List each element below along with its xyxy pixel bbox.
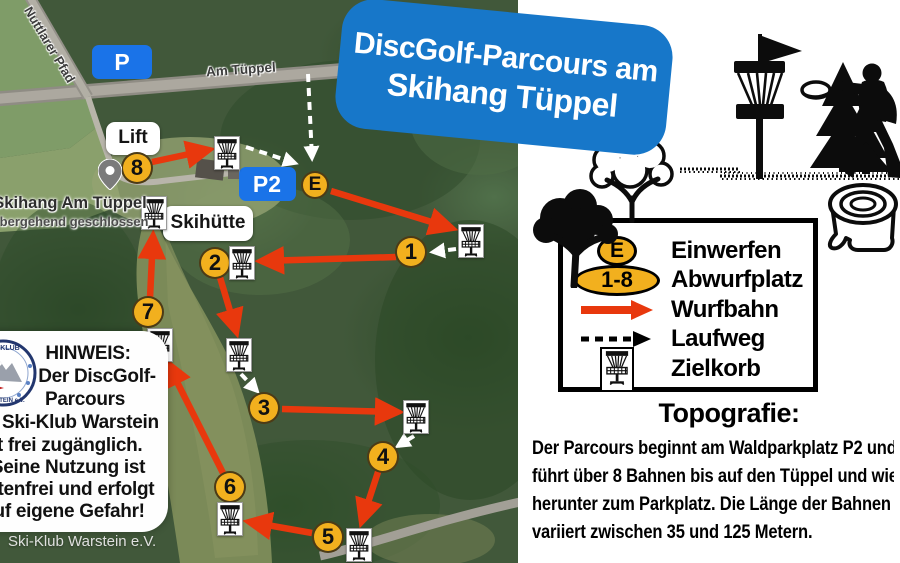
map-pin-icon <box>98 159 122 190</box>
basket-icon <box>346 528 372 562</box>
zielkorb-glyph <box>347 529 371 561</box>
legend-row-zielkorb: Zielkorb <box>563 350 813 388</box>
topografie-line: Der Parcours beginnt am Waldparkplatz P2… <box>532 435 847 463</box>
zielkorb-glyph <box>230 247 254 279</box>
zielkorb-glyph <box>602 349 632 385</box>
grass-line <box>720 173 900 179</box>
topografie-section: Topografie: Der Parcours beginnt am Wald… <box>522 398 900 547</box>
zielkorb-glyph <box>404 401 428 433</box>
tee-badge-3: 3 <box>248 392 280 424</box>
parking-badge-p2: P2 <box>239 167 296 201</box>
tee-badge-8: 8 <box>121 152 153 184</box>
tee-badge-4: 4 <box>367 441 399 473</box>
poster: PP2LiftSkihütteE12345678 <box>0 0 900 563</box>
walk-path-arrow <box>398 436 414 446</box>
throw-path-arrow <box>282 409 397 412</box>
hinweis-line: ist frei zugänglich. <box>0 435 142 457</box>
svg-text:SKI-KLUB: SKI-KLUB <box>0 345 20 352</box>
legend-row-wurfbahn: Wurfbahn <box>563 295 813 325</box>
basket-thrower-illustration <box>718 18 900 183</box>
legend-label-zielkorb: Zielkorb <box>671 355 760 383</box>
topografie-line: herunter zum Parkplatz. Die Länge der Ba… <box>532 491 847 519</box>
basket-icon <box>214 136 240 170</box>
basket-icon <box>229 246 255 280</box>
zielkorb-glyph <box>459 225 483 257</box>
walk-path-arrow <box>241 374 257 391</box>
einwerfen-badge: E <box>301 171 329 199</box>
throw-path-arrow <box>150 237 153 298</box>
hinweis-line: Seine Nutzung ist <box>0 457 145 479</box>
legend-label-wurfbahn: Wurfbahn <box>671 296 779 324</box>
zielkorb-icon <box>600 347 634 392</box>
wurfbahn-arrow-icon <box>577 297 657 323</box>
walk-path-arrow <box>308 74 312 158</box>
disc-thrower-icon <box>836 64 900 179</box>
basket-flag-icon <box>734 34 802 179</box>
credit-text: Ski-Klub Warstein e.V. <box>8 533 156 550</box>
topografie-heading: Topografie: <box>522 398 900 429</box>
throw-path-arrow <box>219 274 236 331</box>
throw-path-arrow <box>362 469 379 521</box>
legend-label-einwerfen: Einwerfen <box>671 237 781 265</box>
basket-icon <box>226 338 252 372</box>
zielkorb-glyph <box>218 503 242 535</box>
zielkorb-glyph <box>215 137 239 169</box>
ski-klub-warstein-logo: SKI-KLUB WARSTEIN e.V. <box>0 338 38 408</box>
walk-path-arrow <box>433 249 456 252</box>
hinweis-line: auf eigene Gefahr! <box>0 501 145 523</box>
flying-disc-icon <box>802 82 830 98</box>
throw-path-arrow <box>168 364 223 473</box>
throw-path-arrow <box>250 522 312 533</box>
topografie-text: Der Parcours beginnt am Waldparkplatz P2… <box>522 435 894 547</box>
tree-stump-icon <box>826 182 900 256</box>
grass-tuft <box>680 155 740 177</box>
zielkorb-glyph <box>227 339 251 371</box>
hinweis-line: Der DiscGolf- <box>38 366 156 388</box>
hinweis-line: kostenfrei und erfolgt <box>0 479 154 501</box>
tee-badge-7: 7 <box>132 296 164 328</box>
hinweis-line: Parcours <box>45 389 125 411</box>
legend-label-laufweg: Laufweg <box>671 325 765 353</box>
map-label-lift: Lift <box>106 122 160 155</box>
tee-badge-5: 5 <box>312 521 344 553</box>
tee-badge-2: 2 <box>199 247 231 279</box>
hinweis-line: des Ski-Klub Warstein <box>0 412 159 434</box>
poi-name: Skihang Am Tüppel <box>0 194 147 213</box>
tee-badge-1: 1 <box>395 236 427 268</box>
tee-badge-6: 6 <box>214 471 246 503</box>
basket-icon <box>403 400 429 434</box>
throw-path-arrow <box>262 257 396 261</box>
parking-badge-p: P <box>92 45 152 79</box>
black-tree-icon <box>522 182 622 288</box>
topografie-line: führt über 8 Bahnen bis auf den Tüppel u… <box>532 463 847 491</box>
map-label-skihütte: Skihütte <box>163 206 253 241</box>
poi-status: vorübergehend geschlossen <box>0 214 149 229</box>
basket-icon <box>458 224 484 258</box>
walk-path-arrow <box>246 147 295 163</box>
svg-text:WARSTEIN e.V.: WARSTEIN e.V. <box>0 398 25 404</box>
throw-path-arrow <box>331 191 451 228</box>
hinweis-line: HINWEIS: <box>45 343 130 365</box>
topografie-line: variiert zwischen 35 und 125 Metern. <box>532 519 847 547</box>
throw-path-arrow <box>152 150 208 162</box>
basket-icon <box>217 502 243 536</box>
legend-label-abwurfplatz: Abwurfplatz <box>671 266 803 294</box>
